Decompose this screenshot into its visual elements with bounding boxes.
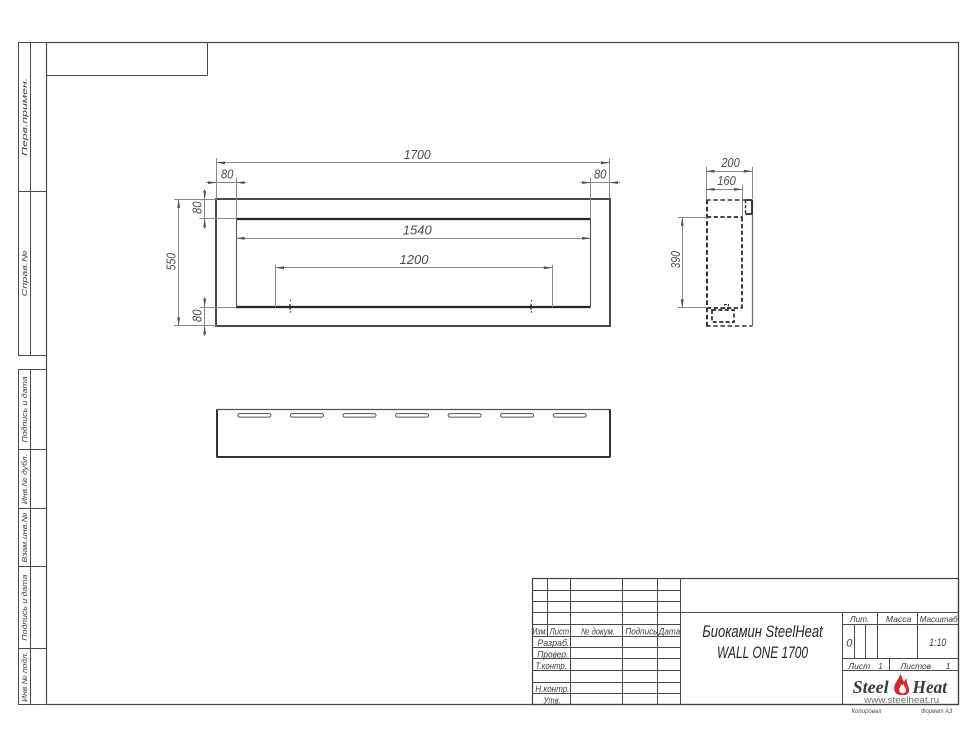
svg-text:160: 160 <box>717 173 736 188</box>
svg-text:Копировал: Копировал <box>852 708 882 715</box>
svg-text:Взам.инв.№: Взам.инв.№ <box>20 512 29 562</box>
svg-text:№ докум.: № докум. <box>581 627 615 637</box>
svg-text:1: 1 <box>878 661 883 671</box>
svg-text:1: 1 <box>946 661 951 671</box>
svg-text:Инв.№ подл.: Инв.№ подл. <box>20 652 29 702</box>
svg-text:80: 80 <box>190 201 205 214</box>
svg-text:Изм.: Изм. <box>532 627 547 637</box>
svg-text:1200: 1200 <box>400 252 430 267</box>
svg-text:200: 200 <box>720 155 740 170</box>
svg-text:Подпись: Подпись <box>625 627 657 637</box>
svg-text:1540: 1540 <box>403 222 433 237</box>
svg-text:550: 550 <box>164 252 179 270</box>
svg-text:WALL ONE 1700: WALL ONE 1700 <box>717 643 808 662</box>
svg-text:390: 390 <box>668 250 683 268</box>
svg-text:www.steelheat.ru: www.steelheat.ru <box>863 695 939 705</box>
svg-text:Лист: Лист <box>549 627 570 637</box>
svg-text:Формат А3: Формат А3 <box>921 708 953 715</box>
svg-text:Листов: Листов <box>900 661 932 671</box>
svg-text:Подпись и дата: Подпись и дата <box>20 575 29 641</box>
svg-text:Инв.№ дубл.: Инв.№ дубл. <box>20 454 29 504</box>
svg-text:1700: 1700 <box>404 147 432 162</box>
svg-text:Биокамин SteelHeat: Биокамин SteelHeat <box>702 622 823 641</box>
svg-text:Утв.: Утв. <box>543 696 561 706</box>
svg-text:80: 80 <box>594 167 607 182</box>
svg-text:80: 80 <box>221 167 234 182</box>
svg-text:Подпись и дата: Подпись и дата <box>20 377 29 443</box>
svg-text:Лист: Лист <box>847 661 870 671</box>
svg-text:1:10: 1:10 <box>929 637 947 649</box>
svg-text:0: 0 <box>846 638 853 650</box>
svg-text:Н.контр.: Н.контр. <box>535 684 569 694</box>
svg-text:Масса: Масса <box>886 615 912 624</box>
svg-text:Разраб.: Разраб. <box>537 638 569 648</box>
svg-text:Дата: Дата <box>658 627 680 637</box>
svg-text:Масштаб: Масштаб <box>920 615 958 624</box>
svg-text:Справ.№: Справ.№ <box>20 250 29 296</box>
svg-text:80: 80 <box>190 309 205 322</box>
svg-text:Провер.: Провер. <box>537 650 568 660</box>
svg-text:Т.контр.: Т.контр. <box>535 661 567 671</box>
svg-text:Лит.: Лит. <box>849 615 870 624</box>
svg-text:Перв.примен.: Перв.примен. <box>20 78 29 156</box>
